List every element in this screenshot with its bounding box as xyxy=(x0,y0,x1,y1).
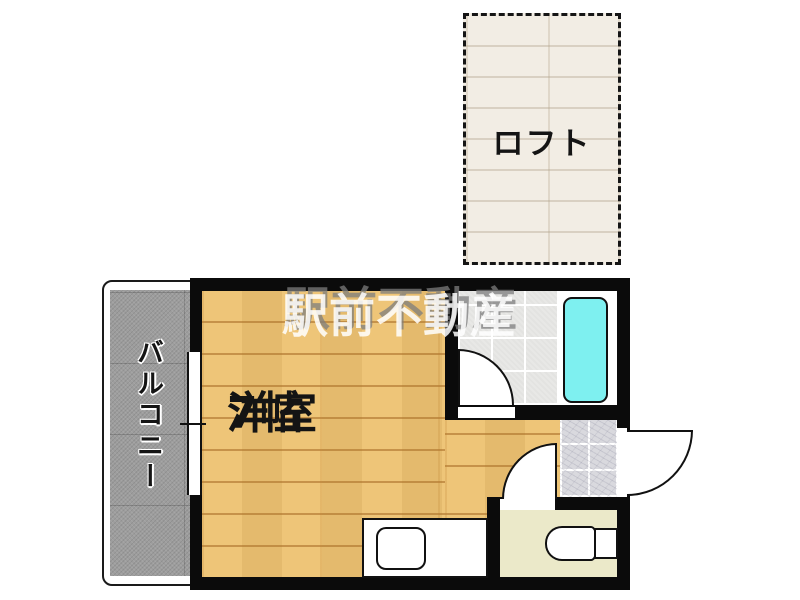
window-center-tick xyxy=(180,423,206,425)
front-door-arc xyxy=(627,430,693,496)
toilet-bowl xyxy=(545,526,597,561)
wall-toilet-left xyxy=(487,497,500,590)
kitchen-sink xyxy=(376,527,426,570)
loft-label: ロフト xyxy=(463,118,621,163)
bathroom-door-leaf xyxy=(458,407,515,418)
toilet-door-opening xyxy=(500,499,555,510)
floorplan-canvas: ロフト バルコニー 洋室 7帖 駅前不動産 xyxy=(0,0,800,600)
wall-bottom xyxy=(190,577,630,590)
toilet-tank xyxy=(594,528,618,559)
bathtub xyxy=(563,297,608,403)
balcony-label: バルコニー xyxy=(128,338,167,493)
front-door-opening xyxy=(617,428,627,497)
watermark-text: 駅前不動産 xyxy=(282,280,517,346)
room-size: 7帖 xyxy=(227,391,306,437)
entrance-tile-floor xyxy=(560,418,617,497)
